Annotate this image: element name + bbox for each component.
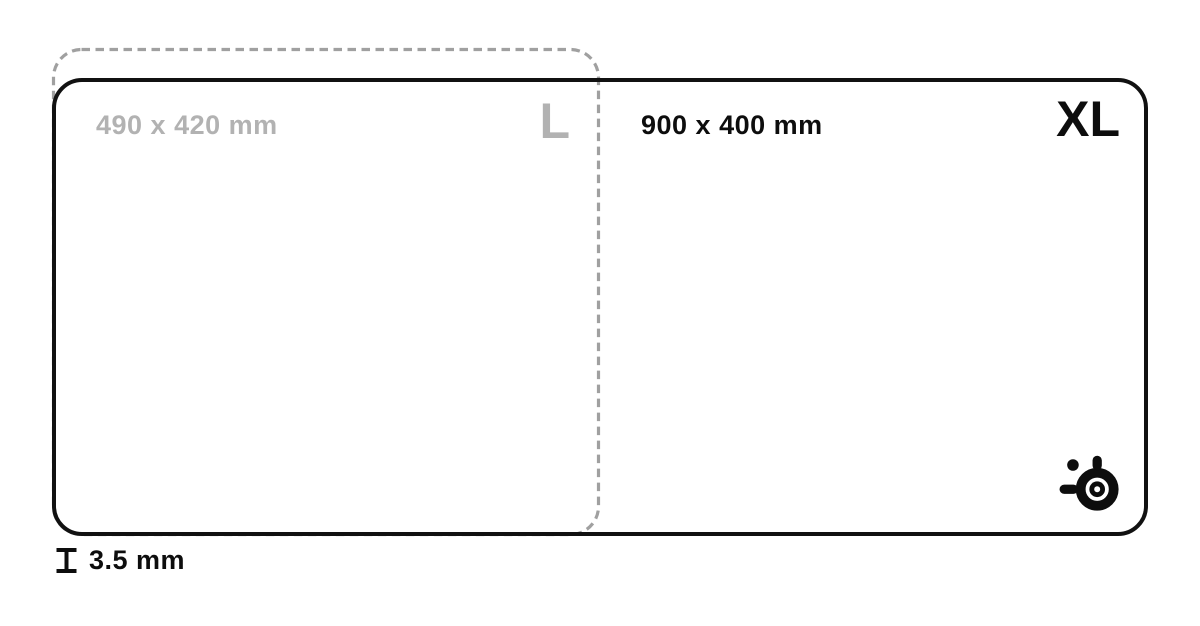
l-pad-dimensions: 490 x 420 mm (96, 112, 278, 139)
xl-pad-outline (52, 78, 1148, 536)
xl-pad-size-label: XL (1056, 94, 1120, 144)
mousepad-size-comparison-diagram: 490 x 420 mm L 900 x 400 mm XL 3.5 (0, 0, 1200, 626)
thickness-value: 3.5 mm (89, 547, 185, 574)
thickness-label: 3.5 mm (55, 547, 185, 574)
steelseries-logo-icon (1058, 448, 1124, 514)
pad-thickness-icon (55, 547, 78, 574)
xl-pad-dimensions: 900 x 400 mm (641, 112, 823, 139)
l-pad-size-label: L (539, 96, 570, 146)
